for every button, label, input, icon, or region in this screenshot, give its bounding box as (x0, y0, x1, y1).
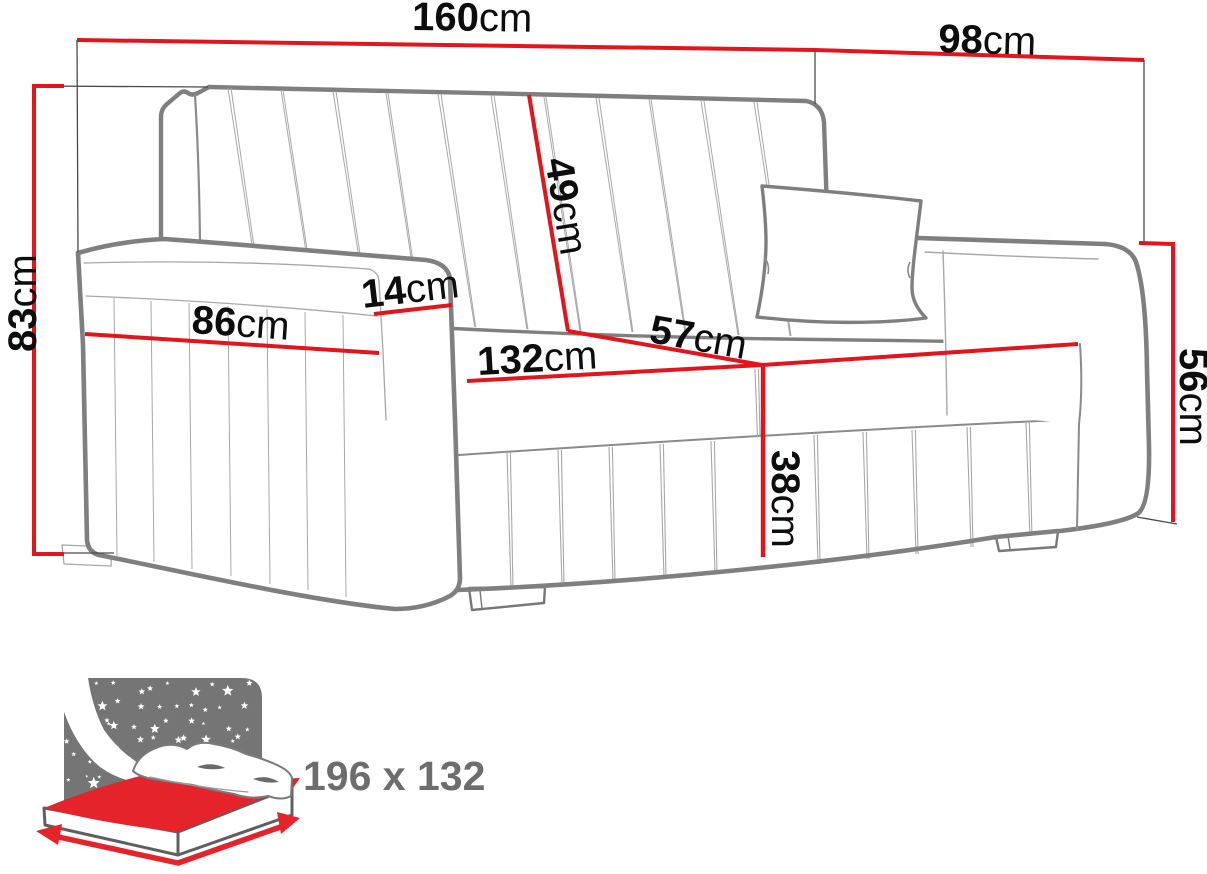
svg-text:132cm: 132cm (476, 333, 598, 384)
svg-text:83cm: 83cm (1, 254, 45, 352)
svg-text:160cm: 160cm (412, 0, 533, 41)
svg-text:196 x 132: 196 x 132 (303, 753, 485, 799)
svg-text:98cm: 98cm (938, 17, 1037, 64)
svg-text:38cm: 38cm (763, 450, 807, 548)
svg-text:56cm: 56cm (1171, 348, 1207, 446)
svg-text:86cm: 86cm (190, 298, 291, 349)
